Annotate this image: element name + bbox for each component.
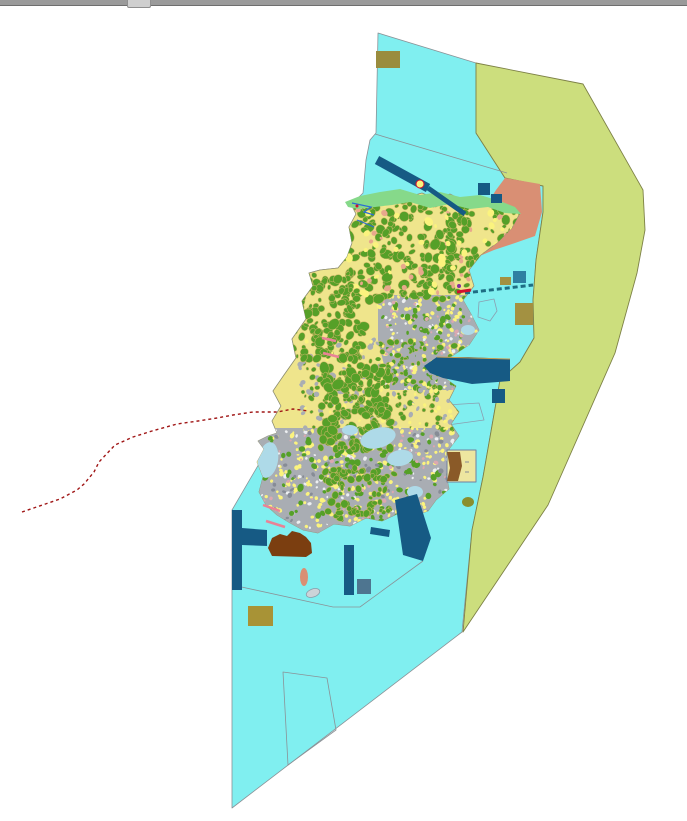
- coast-red-dot: [356, 205, 359, 208]
- tidal-cove-ne-b: [461, 325, 475, 335]
- ferry-port-purple-dot: [457, 284, 461, 288]
- khaki-field-north: [376, 51, 400, 68]
- olive-islet: [462, 497, 474, 507]
- lighthouse-marker: [416, 180, 424, 188]
- ferry-port-red-mark: [457, 290, 471, 292]
- tidal-inlet-d: [342, 425, 358, 435]
- map-canvas[interactable]: [0, 6, 687, 821]
- salmon-islet: [300, 568, 308, 586]
- marine-block-khaki-small: [500, 277, 511, 285]
- port-basin-square: [492, 389, 505, 403]
- south-pier-vertical: [344, 545, 354, 595]
- khaki-field-south: [248, 606, 273, 626]
- marine-block-b: [491, 194, 502, 203]
- steel-block-square: [357, 579, 371, 594]
- marine-block-teal: [513, 271, 526, 283]
- marine-block-a: [478, 183, 490, 195]
- khaki-field-east: [515, 303, 533, 325]
